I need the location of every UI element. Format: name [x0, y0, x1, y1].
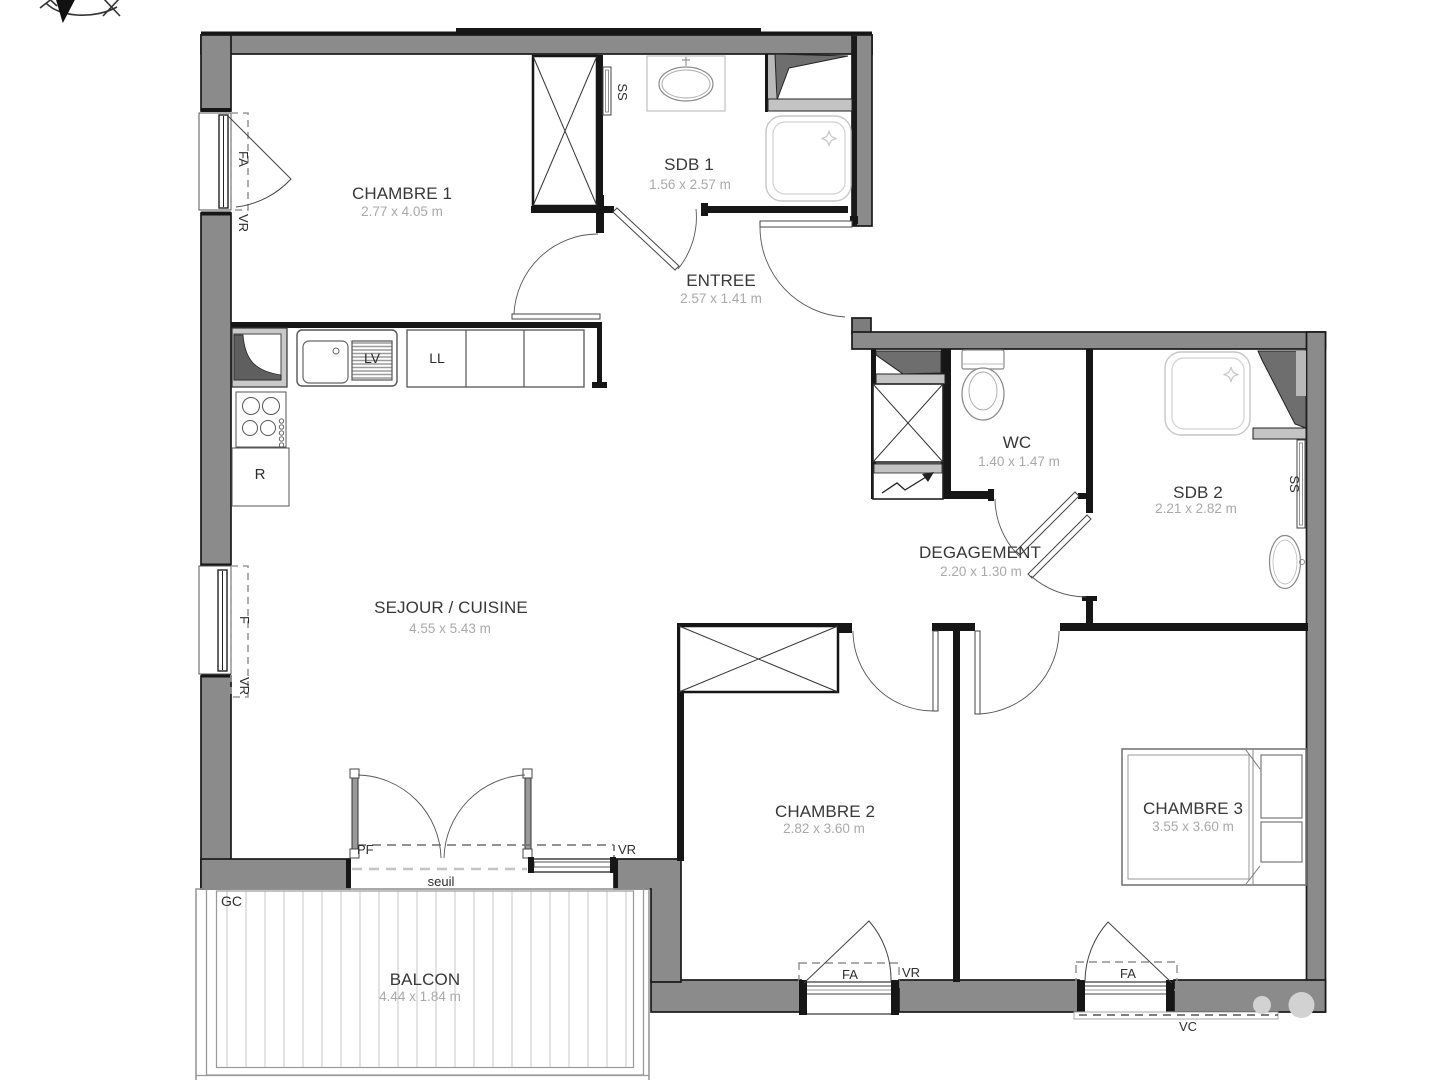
svg-text:FA: FA [842, 967, 858, 982]
svg-text:LV: LV [364, 350, 381, 366]
svg-text:2.82 x 3.60 m: 2.82 x 3.60 m [783, 821, 865, 836]
svg-text:CHAMBRE 2: CHAMBRE 2 [775, 802, 875, 821]
svg-text:SDB 2: SDB 2 [1173, 483, 1223, 502]
svg-text:SEJOUR / CUISINE: SEJOUR / CUISINE [374, 598, 528, 617]
svg-text:SS: SS [1287, 475, 1302, 493]
svg-text:ENTREE: ENTREE [686, 271, 756, 290]
svg-text:seuil: seuil [428, 874, 455, 889]
svg-text:GC: GC [221, 893, 242, 909]
svg-text:VR: VR [236, 214, 251, 232]
svg-text:DEGAGEMENT: DEGAGEMENT [919, 543, 1041, 562]
svg-text:CHAMBRE 3: CHAMBRE 3 [1143, 799, 1243, 818]
svg-text:CHAMBRE 1: CHAMBRE 1 [352, 184, 452, 203]
svg-text:2.77 x 4.05 m: 2.77 x 4.05 m [361, 204, 443, 219]
svg-text:4.55 x 5.43 m: 4.55 x 5.43 m [409, 621, 491, 636]
svg-text:VR: VR [237, 677, 252, 695]
svg-text:VR: VR [618, 842, 636, 857]
svg-text:2.21 x 2.82 m: 2.21 x 2.82 m [1155, 501, 1237, 516]
svg-text:WC: WC [1003, 433, 1032, 452]
svg-text:1.56 x 2.57 m: 1.56 x 2.57 m [649, 177, 731, 192]
svg-text:VC: VC [1179, 1019, 1197, 1034]
svg-text:FA: FA [236, 151, 251, 167]
svg-text:SDB 1: SDB 1 [664, 155, 714, 174]
svg-text:2.20 x 1.30 m: 2.20 x 1.30 m [940, 564, 1022, 579]
svg-text:SS: SS [615, 83, 630, 101]
svg-text:3.55 x 3.60 m: 3.55 x 3.60 m [1152, 819, 1234, 834]
svg-text:F: F [237, 616, 252, 624]
svg-text:R: R [255, 466, 266, 483]
svg-text:PF: PF [357, 842, 374, 857]
svg-text:4.44 x 1.84 m: 4.44 x 1.84 m [379, 989, 461, 1004]
svg-text:LL: LL [429, 350, 445, 366]
svg-text:BALCON: BALCON [390, 970, 461, 989]
svg-text:1.40 x 1.47 m: 1.40 x 1.47 m [978, 454, 1060, 469]
svg-text:2.57 x 1.41 m: 2.57 x 1.41 m [680, 291, 762, 306]
svg-text:VR: VR [902, 965, 920, 980]
svg-text:FA: FA [1120, 966, 1136, 981]
